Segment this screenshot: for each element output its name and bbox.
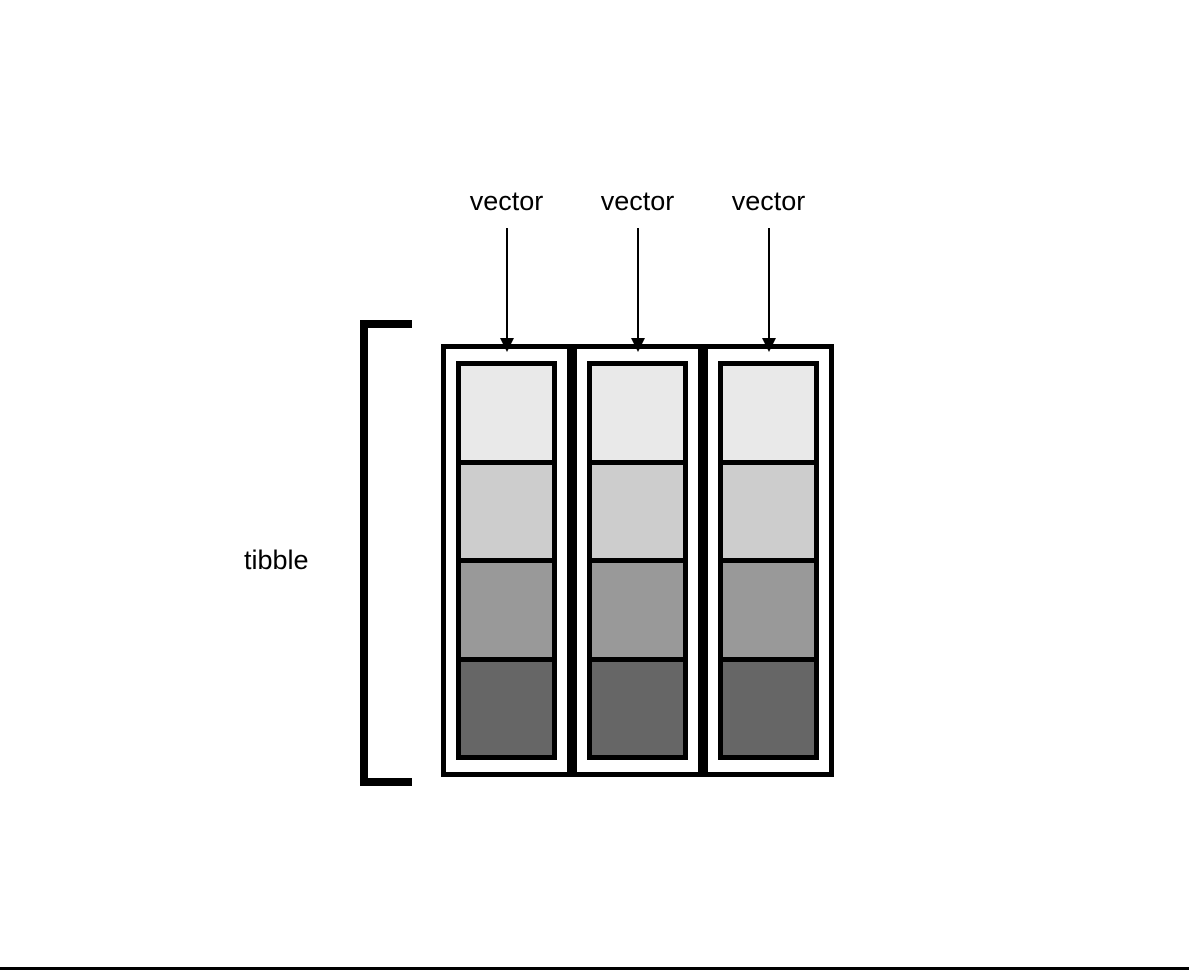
tibble-bracket-icon [360,320,412,786]
tibble-cell [461,366,552,460]
bottom-edge-line [0,967,1189,970]
arrow-head [631,338,645,352]
vector-column-box [572,344,703,777]
vector-column-box [441,344,572,777]
down-arrow-icon [630,228,646,352]
vector-column-unit: vector [703,186,834,777]
vector-column-unit: vector [441,186,572,777]
tibble-cell [592,662,683,756]
arrow-head [500,338,514,352]
tibble-cell [461,662,552,756]
tibble-cell [723,662,814,756]
vector-label: vector [572,186,703,216]
down-arrow-icon [499,228,515,352]
tibble-cell [592,366,683,460]
cell-stack [587,361,688,760]
vector-label: vector [703,186,834,216]
vector-column-box [703,344,834,777]
vector-label: vector [441,186,572,216]
arrow-line [637,228,639,338]
tibble-cell [461,465,552,559]
tibble-cell [461,563,552,657]
arrow-head [762,338,776,352]
tibble-label: tibble [244,544,309,576]
tibble-cell [723,366,814,460]
columns-area: vectorvectorvector [441,186,834,777]
cell-stack [456,361,557,760]
arrow-line [768,228,770,338]
tibble-diagram: tibble vectorvectorvector [0,0,1189,974]
down-arrow-icon [761,228,777,352]
vector-column-unit: vector [572,186,703,777]
tibble-cell [592,465,683,559]
arrow-line [506,228,508,338]
cell-stack [718,361,819,760]
tibble-cell [723,563,814,657]
tibble-cell [592,563,683,657]
tibble-cell [723,465,814,559]
